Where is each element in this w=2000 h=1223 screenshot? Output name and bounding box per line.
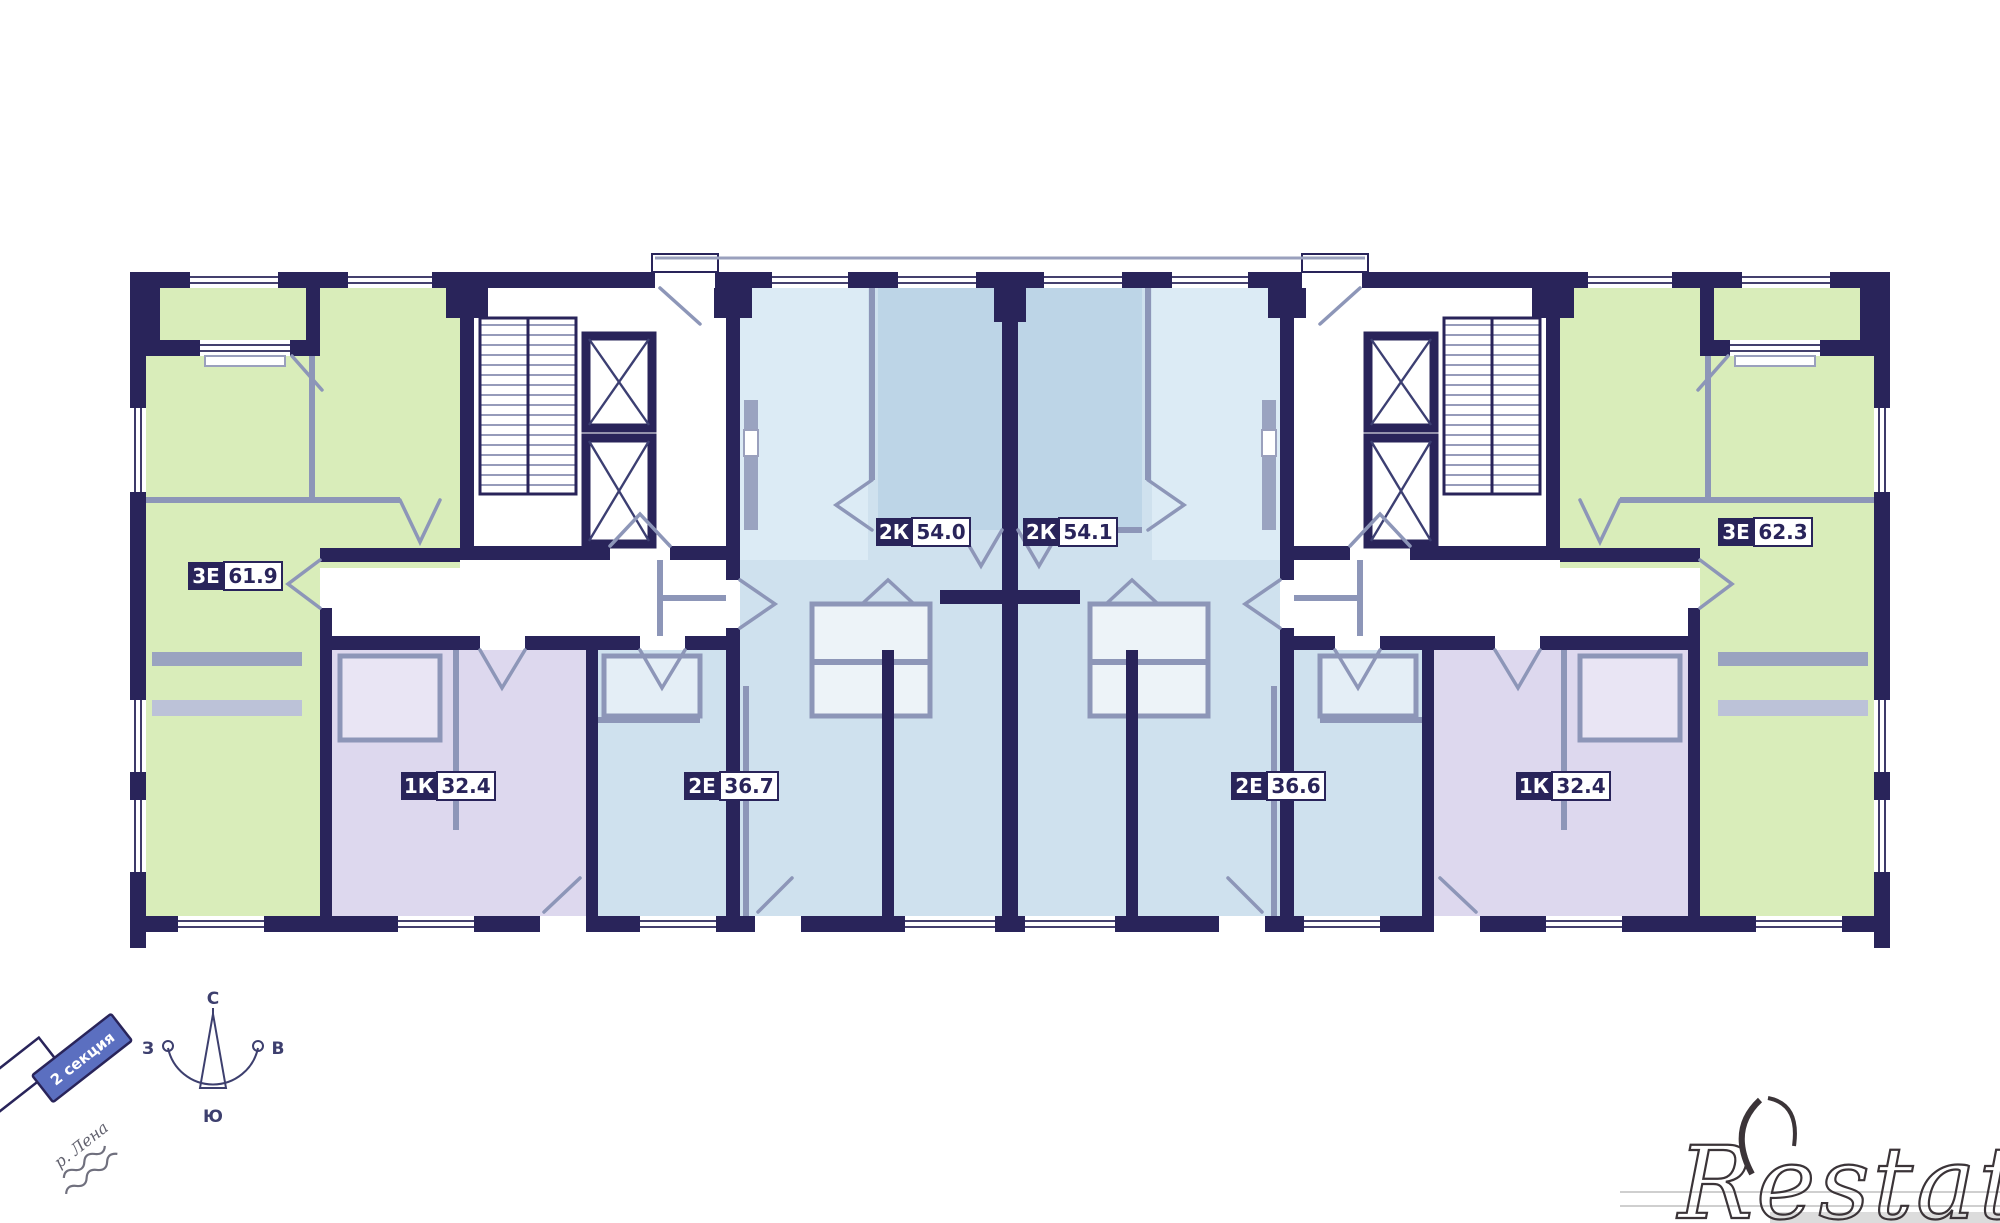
elevator-shafts-left <box>586 336 652 544</box>
apartment-area: 32.4 <box>1556 774 1605 798</box>
compass-south-label: Ю <box>203 1107 223 1127</box>
floor-plan-page: 3Е 61.9 1К 32.4 2Е 36.7 2К 54.0 2К 54.1 <box>0 0 2000 1223</box>
apartment-area: 36.6 <box>1271 774 1320 798</box>
apartment-type: 3Е <box>1722 520 1750 544</box>
compass-north-label: С <box>207 989 219 1009</box>
elevator-shafts-right <box>1368 336 1434 544</box>
river: р. Лена <box>42 1118 126 1197</box>
apartment-label: 2К 54.0 <box>876 518 970 546</box>
apartment-label: 1К 32.4 <box>401 772 495 800</box>
apartment-type: 2Е <box>1235 774 1263 798</box>
compass-needle <box>200 1014 226 1088</box>
apartment-label: 2Е 36.6 <box>1231 772 1325 800</box>
apartment-label: 2Е 36.7 <box>684 772 778 800</box>
apartment-label: 2К 54.1 <box>1023 518 1117 546</box>
apartment-type: 2К <box>1026 520 1057 544</box>
apartment-type: 2К <box>879 520 910 544</box>
watermark-text: Restate <box>1676 1125 2000 1223</box>
apartment-label: 3Е 61.9 <box>188 562 282 590</box>
apartment-area: 62.3 <box>1758 520 1807 544</box>
apartment-area: 36.7 <box>724 774 773 798</box>
apartment-type: 3Е <box>192 564 220 588</box>
apartment-type: 2Е <box>688 774 716 798</box>
compass-west-label: З <box>142 1039 154 1059</box>
river-label: р. Лена <box>50 1118 112 1172</box>
compass-east-label: В <box>272 1039 285 1059</box>
apartment-label: 1К 32.4 <box>1516 772 1610 800</box>
apartment-area: 54.0 <box>916 520 965 544</box>
watermark: Restate <box>1620 1098 2000 1223</box>
apartment-area: 61.9 <box>228 564 277 588</box>
staircase-right <box>1444 318 1540 494</box>
apartment-area: 32.4 <box>441 774 490 798</box>
floor-plan: 3Е 61.9 1К 32.4 2Е 36.7 2К 54.0 2К 54.1 <box>0 0 2000 1223</box>
apartment-area: 54.1 <box>1063 520 1112 544</box>
apartment-type: 1К <box>1519 774 1550 798</box>
staircase-left <box>480 318 576 494</box>
apartment-type: 1К <box>404 774 435 798</box>
apartment-label: 3Е 62.3 <box>1718 518 1812 546</box>
compass: С З В Ю <box>142 989 285 1127</box>
